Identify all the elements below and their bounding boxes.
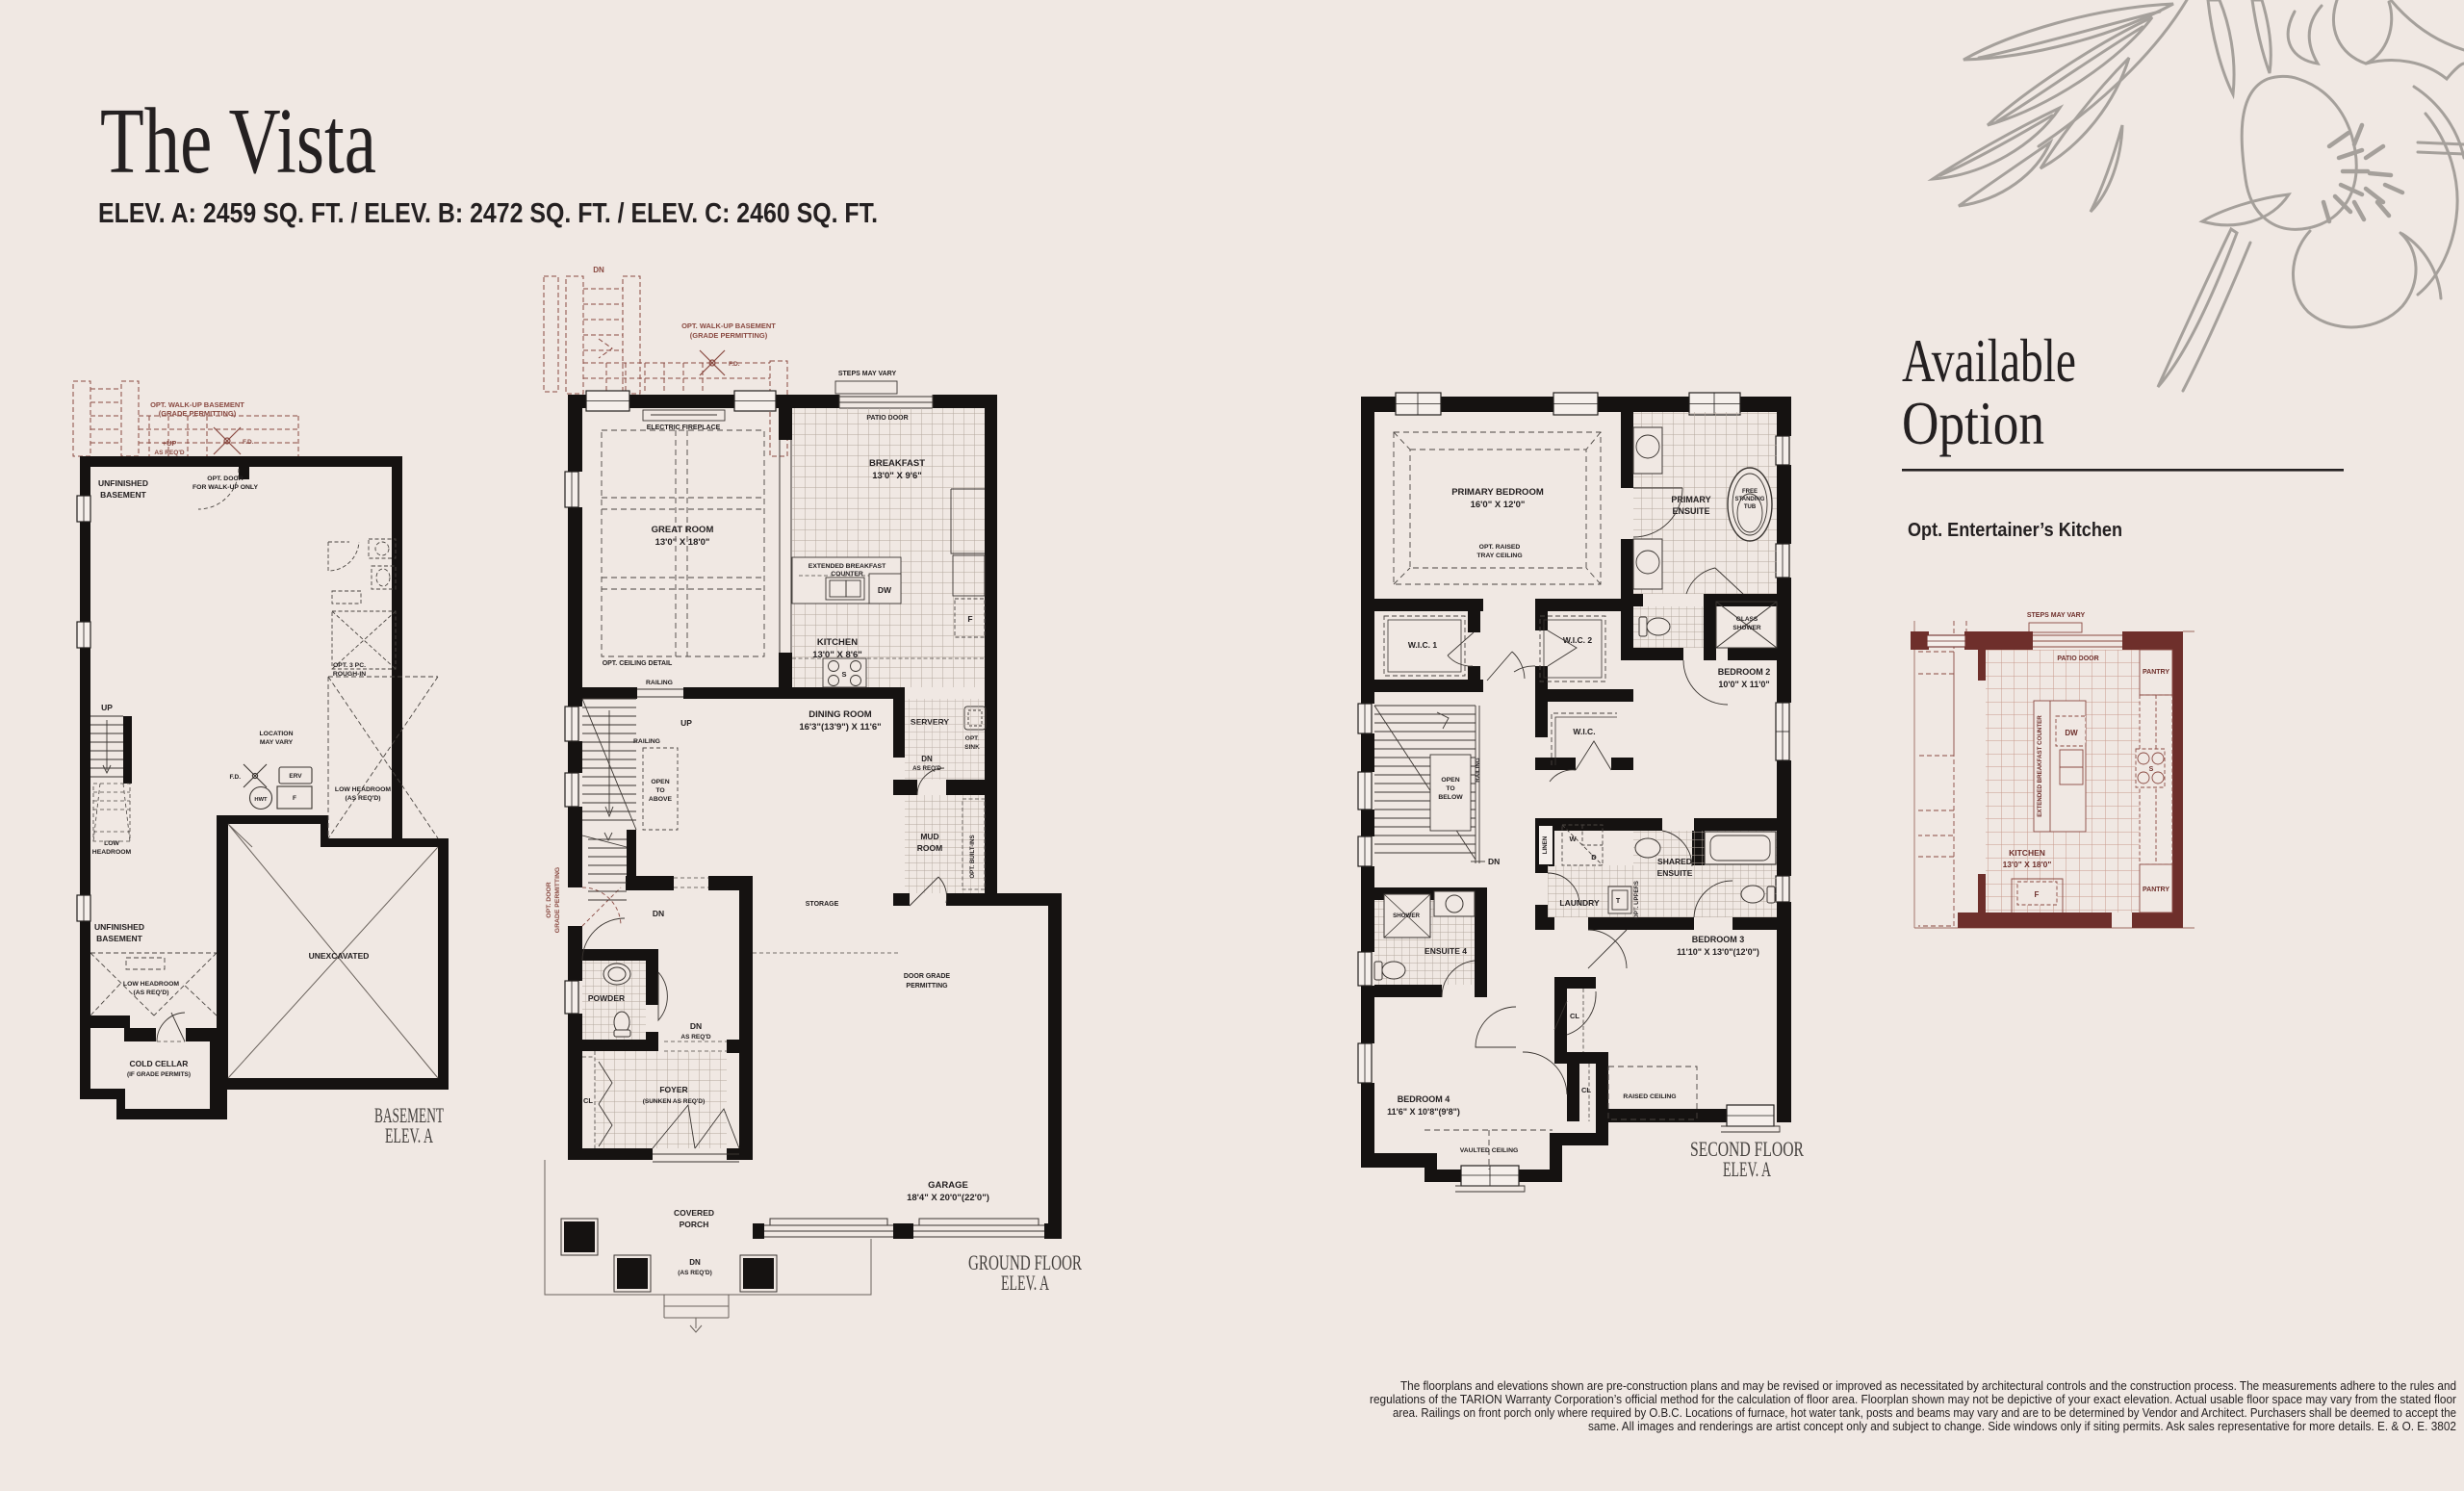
svg-text:F: F bbox=[967, 614, 972, 624]
svg-text:BEDROOM 4: BEDROOM 4 bbox=[1398, 1094, 1450, 1104]
svg-text:UNFINISHED: UNFINISHED bbox=[98, 478, 148, 488]
svg-text:(IF GRADE PERMITS): (IF GRADE PERMITS) bbox=[127, 1071, 191, 1078]
svg-text:11'10" X 13'0"(12'0"): 11'10" X 13'0"(12'0") bbox=[1677, 947, 1759, 957]
svg-text:FREE: FREE bbox=[1742, 489, 1758, 495]
svg-text:F: F bbox=[2035, 890, 2040, 899]
svg-text:OPT. DOOR: OPT. DOOR bbox=[546, 882, 552, 917]
svg-text:The floorplans and elevations: The floorplans and elevations shown are … bbox=[1400, 1379, 2456, 1393]
svg-text:DN: DN bbox=[921, 755, 933, 763]
svg-text:EXTENDED BREAKFAST COUNTER: EXTENDED BREAKFAST COUNTER bbox=[2037, 715, 2043, 817]
svg-text:COVERED: COVERED bbox=[674, 1208, 714, 1218]
svg-text:18'4" X 20'0"(22'0"): 18'4" X 20'0"(22'0") bbox=[907, 1193, 989, 1203]
svg-text:CL: CL bbox=[583, 1096, 593, 1105]
svg-text:W.I.C. 2: W.I.C. 2 bbox=[1563, 635, 1593, 645]
svg-text:PANTRY: PANTRY bbox=[2143, 669, 2169, 676]
svg-text:10'0" X 11'0": 10'0" X 11'0" bbox=[1718, 680, 1769, 689]
svg-text:OPT. 3 PC.: OPT. 3 PC. bbox=[333, 662, 366, 669]
svg-text:TO: TO bbox=[1446, 785, 1454, 792]
svg-text:(AS REQ'D): (AS REQ'D) bbox=[133, 990, 168, 996]
svg-text:W.I.C.: W.I.C. bbox=[1573, 727, 1595, 736]
svg-text:W: W bbox=[1569, 835, 1577, 843]
svg-text:TO: TO bbox=[655, 787, 664, 794]
svg-text:DINING ROOM: DINING ROOM bbox=[808, 709, 872, 720]
svg-text:COUNTER: COUNTER bbox=[831, 571, 863, 578]
svg-text:F.D.: F.D. bbox=[243, 439, 254, 446]
svg-text:GLASS: GLASS bbox=[1736, 616, 1758, 623]
svg-text:BASEMENT: BASEMENT bbox=[96, 934, 143, 943]
svg-text:HWT: HWT bbox=[254, 797, 268, 803]
svg-text:UP: UP bbox=[101, 703, 113, 712]
svg-text:RAILING: RAILING bbox=[1475, 758, 1481, 783]
svg-text:The Vista: The Vista bbox=[100, 90, 376, 193]
svg-text:(AS REQ'D): (AS REQ'D) bbox=[345, 795, 380, 802]
svg-text:EXTENDED BREAKFAST: EXTENDED BREAKFAST bbox=[808, 563, 886, 570]
svg-text:16'0" X 12'0": 16'0" X 12'0" bbox=[1471, 500, 1526, 510]
svg-text:CL: CL bbox=[1570, 1012, 1579, 1020]
svg-text:ERV: ERV bbox=[289, 773, 302, 780]
svg-text:LOW: LOW bbox=[104, 840, 119, 847]
svg-text:OPT. DOOR: OPT. DOOR bbox=[207, 476, 243, 482]
svg-text:PERMITTING: PERMITTING bbox=[906, 983, 948, 990]
svg-text:VAULTED CEILING: VAULTED CEILING bbox=[1460, 1147, 1519, 1154]
svg-text:KITCHEN: KITCHEN bbox=[2009, 848, 2045, 858]
svg-text:OPT. BUILT-INS: OPT. BUILT-INS bbox=[969, 835, 976, 878]
svg-text:ROOM: ROOM bbox=[917, 843, 942, 853]
svg-text:BASEMENT: BASEMENT bbox=[100, 490, 147, 500]
svg-text:BEDROOM 2: BEDROOM 2 bbox=[1718, 667, 1771, 677]
svg-text:RAISED CEILING: RAISED CEILING bbox=[1623, 1093, 1676, 1100]
svg-text:DN: DN bbox=[689, 1258, 701, 1267]
svg-text:F: F bbox=[293, 795, 296, 802]
svg-text:DOOR GRADE: DOOR GRADE bbox=[904, 973, 951, 980]
svg-text:CL: CL bbox=[1581, 1086, 1591, 1094]
svg-text:16'3"(13'9") X 11'6": 16'3"(13'9") X 11'6" bbox=[799, 722, 881, 733]
svg-text:SHARED: SHARED bbox=[1657, 857, 1692, 866]
svg-text:RAILING: RAILING bbox=[633, 738, 660, 745]
svg-text:LINEN: LINEN bbox=[1542, 835, 1549, 854]
svg-text:COLD CELLAR: COLD CELLAR bbox=[130, 1059, 189, 1068]
svg-text:SHOWER: SHOWER bbox=[1732, 625, 1761, 631]
svg-text:RAILING: RAILING bbox=[646, 680, 673, 686]
svg-text:STEPS MAY VARY: STEPS MAY VARY bbox=[838, 371, 897, 377]
svg-text:ELEV. A: ELEV. A bbox=[385, 1123, 433, 1147]
svg-text:AS REQ'D: AS REQ'D bbox=[680, 1034, 710, 1041]
svg-text:HEADROOM: HEADROOM bbox=[92, 849, 132, 856]
svg-text:TRAY CEILING: TRAY CEILING bbox=[1476, 553, 1522, 559]
svg-text:T: T bbox=[1616, 898, 1621, 905]
svg-text:ABOVE: ABOVE bbox=[649, 796, 673, 803]
svg-text:BEDROOM 3: BEDROOM 3 bbox=[1692, 935, 1745, 944]
svg-text:DN: DN bbox=[593, 266, 604, 274]
svg-text:UNEXCAVATED: UNEXCAVATED bbox=[309, 951, 370, 961]
svg-text:STORAGE: STORAGE bbox=[806, 901, 839, 908]
svg-text:OPT. RAISED: OPT. RAISED bbox=[1479, 544, 1521, 551]
svg-text:PORCH: PORCH bbox=[680, 1220, 709, 1229]
svg-text:S: S bbox=[841, 670, 846, 679]
svg-text:DN: DN bbox=[653, 909, 664, 918]
svg-text:ELEV. A: 2459 SQ. FT. / ELEV.: ELEV. A: 2459 SQ. FT. / ELEV. B: 2472 SQ… bbox=[98, 198, 878, 229]
svg-text:UNFINISHED: UNFINISHED bbox=[94, 922, 144, 932]
svg-text:STEPS MAY VARY: STEPS MAY VARY bbox=[2027, 612, 2086, 619]
svg-text:MAY VARY: MAY VARY bbox=[260, 739, 294, 746]
svg-text:W.I.C. 1: W.I.C. 1 bbox=[1408, 640, 1438, 650]
svg-text:Option: Option bbox=[1902, 389, 2044, 457]
svg-text:11'6" X 10'8"(9'8"): 11'6" X 10'8"(9'8") bbox=[1387, 1107, 1460, 1117]
svg-text:same. All images and rendering: same. All images and renderings are arti… bbox=[1588, 1420, 2456, 1433]
svg-text:POWDER: POWDER bbox=[588, 993, 625, 1003]
svg-text:FOR WALK-UP ONLY: FOR WALK-UP ONLY bbox=[192, 484, 258, 491]
svg-text:UP: UP bbox=[680, 718, 692, 728]
svg-text:GRADE PERMITTING: GRADE PERMITTING bbox=[554, 867, 561, 933]
svg-text:regulations of the TARION Warr: regulations of the TARION Warranty Corpo… bbox=[1370, 1393, 2456, 1406]
svg-text:LOW HEADROOM: LOW HEADROOM bbox=[335, 786, 391, 793]
svg-text:GARAGE: GARAGE bbox=[928, 1180, 968, 1191]
svg-text:PANTRY: PANTRY bbox=[2143, 887, 2169, 893]
svg-text:PRIMARY BEDROOM: PRIMARY BEDROOM bbox=[1451, 487, 1544, 498]
svg-text:OPEN: OPEN bbox=[1441, 777, 1459, 784]
svg-text:D: D bbox=[1591, 853, 1597, 861]
svg-text:MUD: MUD bbox=[920, 832, 938, 841]
svg-text:Opt. Entertainer’s Kitchen: Opt. Entertainer’s Kitchen bbox=[1908, 519, 2122, 541]
svg-text:+UP: +UP bbox=[163, 439, 177, 448]
svg-text:(GRADE PERMITTING): (GRADE PERMITTING) bbox=[159, 409, 237, 418]
svg-text:Available: Available bbox=[1902, 326, 2076, 395]
svg-text:TUB: TUB bbox=[1744, 504, 1757, 510]
svg-text:OPT. WALK-UP BASEMENT: OPT. WALK-UP BASEMENT bbox=[681, 321, 776, 330]
svg-text:OPEN: OPEN bbox=[651, 779, 669, 785]
svg-text:(AS REQ'D): (AS REQ'D) bbox=[678, 1270, 712, 1276]
svg-text:F.D.: F.D. bbox=[229, 774, 241, 781]
svg-text:(SUNKEN AS REQ'D): (SUNKEN AS REQ'D) bbox=[643, 1098, 706, 1105]
svg-text:13'0" X 18'0": 13'0" X 18'0" bbox=[655, 537, 710, 548]
svg-text:BELOW: BELOW bbox=[1438, 794, 1463, 801]
svg-text:DN: DN bbox=[690, 1021, 702, 1031]
svg-text:GREAT ROOM: GREAT ROOM bbox=[652, 525, 714, 535]
svg-text:SHOWER: SHOWER bbox=[1393, 913, 1420, 919]
svg-text:DW: DW bbox=[878, 585, 892, 595]
svg-text:ELEV. A: ELEV. A bbox=[1001, 1271, 1049, 1295]
svg-text:FOYER: FOYER bbox=[659, 1085, 687, 1094]
svg-text:BREAKFAST: BREAKFAST bbox=[869, 458, 925, 469]
svg-text:S: S bbox=[2149, 766, 2154, 773]
svg-text:ENSUITE 4: ENSUITE 4 bbox=[1424, 946, 1467, 956]
svg-text:13'0" X 9'6": 13'0" X 9'6" bbox=[872, 471, 922, 481]
svg-text:area. Railings on front porch: area. Railings on front porch only where… bbox=[1393, 1406, 2456, 1420]
svg-text:PRIMARY: PRIMARY bbox=[1671, 495, 1710, 504]
svg-text:DW: DW bbox=[2065, 729, 2078, 737]
svg-text:OPT. WALK-UP BASEMENT: OPT. WALK-UP BASEMENT bbox=[150, 400, 244, 409]
svg-text:F.D.: F.D. bbox=[729, 361, 740, 368]
svg-text:AS REQ'D: AS REQ'D bbox=[154, 450, 184, 456]
svg-text:(GRADE PERMITTING): (GRADE PERMITTING) bbox=[690, 331, 768, 340]
svg-text:ENSUITE: ENSUITE bbox=[1657, 868, 1693, 878]
svg-text:OPT. CEILING DETAIL: OPT. CEILING DETAIL bbox=[603, 660, 673, 667]
svg-text:LOCATION: LOCATION bbox=[260, 731, 294, 737]
svg-text:STANDING: STANDING bbox=[1735, 497, 1765, 502]
svg-text:ELEV. A: ELEV. A bbox=[1723, 1157, 1771, 1181]
svg-text:LOW HEADROOM: LOW HEADROOM bbox=[123, 981, 179, 988]
svg-text:ENSUITE: ENSUITE bbox=[1672, 506, 1709, 516]
svg-text:KITCHEN: KITCHEN bbox=[817, 637, 858, 648]
svg-text:13'0" X 18'0": 13'0" X 18'0" bbox=[2003, 860, 2052, 869]
svg-text:DN: DN bbox=[1488, 857, 1500, 866]
